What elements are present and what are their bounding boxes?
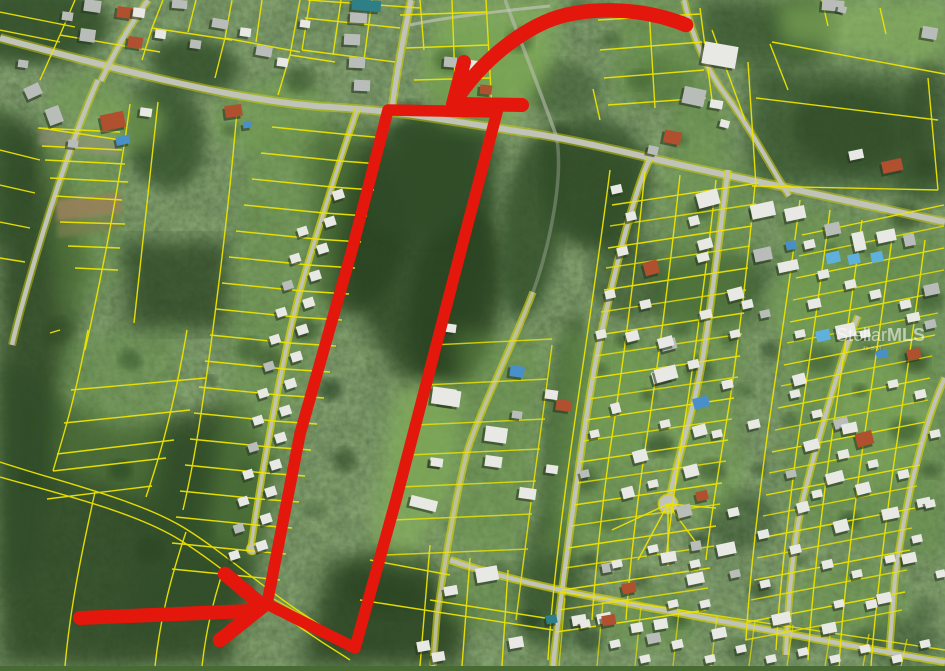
svg-text:35-3-M: 35-3-M (862, 346, 881, 352)
svg-text:StellarMLS: StellarMLS (836, 325, 925, 345)
